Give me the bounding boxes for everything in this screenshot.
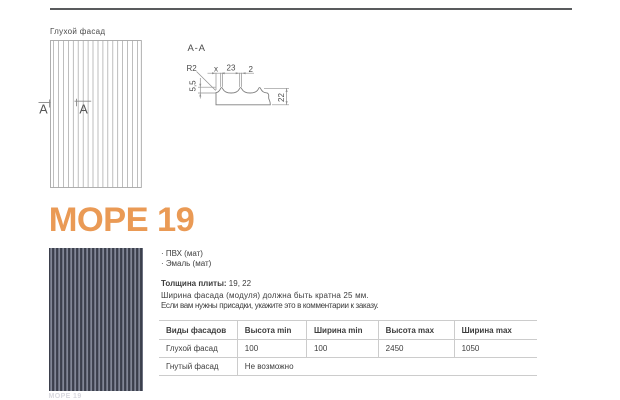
svg-text:22: 22 — [277, 93, 286, 102]
svg-text:5,5: 5,5 — [189, 80, 198, 92]
svg-text:R2: R2 — [187, 64, 198, 73]
svg-text:2: 2 — [249, 65, 254, 74]
svg-text:x: x — [214, 65, 218, 74]
svg-text:A: A — [39, 103, 48, 117]
svg-text:23: 23 — [227, 64, 236, 73]
svg-text:А-А: А-А — [188, 43, 206, 54]
svg-text:A: A — [79, 103, 88, 117]
